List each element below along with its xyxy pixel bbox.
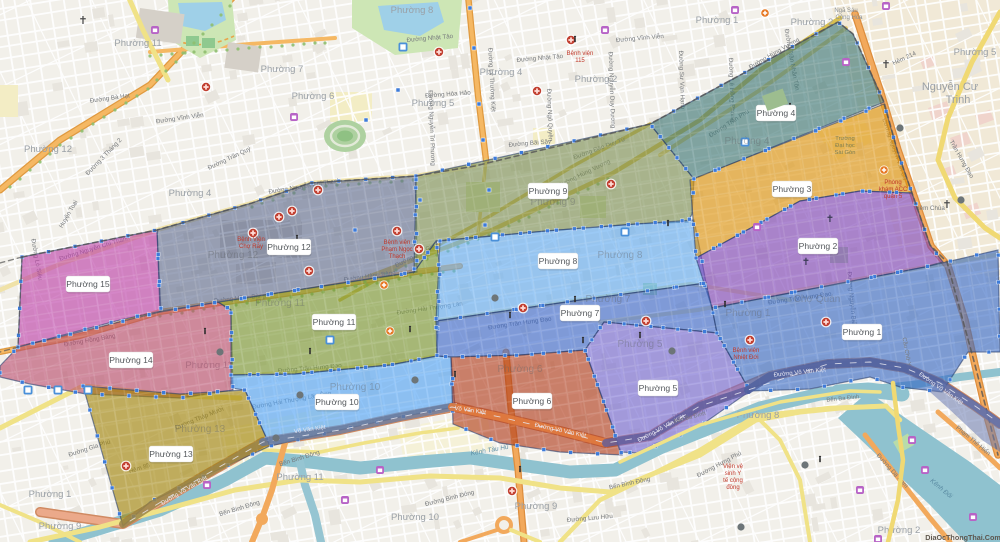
svg-text:Phường 10: Phường 10 <box>330 382 381 393</box>
svg-text:Cộng Hòa: Cộng Hòa <box>835 15 863 21</box>
svg-text:Thạch: Thạch <box>389 254 406 260</box>
svg-text:đồng: đồng <box>726 485 739 491</box>
svg-text:Chợ Quán: Chợ Quán <box>794 294 841 305</box>
svg-text:Phường 6: Phường 6 <box>292 91 335 102</box>
svg-text:Bệnh viện: Bệnh viện <box>733 348 760 354</box>
svg-text:Phường 1: Phường 1 <box>696 15 739 26</box>
svg-text:Phạm Ngọc: Phạm Ngọc <box>381 247 412 253</box>
svg-text:Phường 4: Phường 4 <box>725 136 770 147</box>
svg-text:Phường 13: Phường 13 <box>175 424 226 435</box>
svg-text:Phường 12: Phường 12 <box>24 144 72 155</box>
svg-text:Phường 10: Phường 10 <box>315 397 359 407</box>
svg-text:Phường 2: Phường 2 <box>791 17 834 28</box>
svg-text:Ngã Sáu: Ngã Sáu <box>834 8 857 14</box>
svg-text:Phường 5: Phường 5 <box>954 47 997 58</box>
svg-text:Viện vệ: Viện vệ <box>723 464 744 470</box>
svg-text:Phường 9: Phường 9 <box>515 501 558 512</box>
svg-text:sinh Y: sinh Y <box>725 471 742 477</box>
svg-text:Phường 7: Phường 7 <box>586 294 631 305</box>
svg-text:Phường 9: Phường 9 <box>39 521 82 532</box>
svg-text:Phường 10: Phường 10 <box>391 512 439 523</box>
svg-text:Phường 4: Phường 4 <box>480 67 523 78</box>
svg-text:Phường 3: Phường 3 <box>773 184 812 194</box>
svg-text:Sài Gòn: Sài Gòn <box>835 150 856 156</box>
svg-text:Nguyễn Cư: Nguyễn Cư <box>922 80 979 93</box>
svg-text:quận 5: quận 5 <box>884 194 903 200</box>
svg-text:Phường 2: Phường 2 <box>799 241 838 251</box>
svg-text:✝: ✝ <box>78 15 87 27</box>
svg-text:Phường 1: Phường 1 <box>726 308 771 319</box>
svg-text:Phường 12: Phường 12 <box>208 250 259 261</box>
svg-text:Phường 5: Phường 5 <box>618 339 663 350</box>
svg-text:Bệnh Viện: Bệnh Viện <box>237 237 265 243</box>
svg-text:Bệnh viện: Bệnh viện <box>384 240 411 246</box>
svg-text:Phường 8: Phường 8 <box>598 250 643 261</box>
svg-text:Phòng: Phòng <box>884 180 901 186</box>
svg-text:Chợ Rẫy: Chợ Rẫy <box>239 243 263 250</box>
svg-text:115: 115 <box>575 58 585 64</box>
svg-text:Phường 11: Phường 11 <box>313 317 356 327</box>
svg-text:DiaOcThongThai.Com: DiaOcThongThai.Com <box>925 533 1000 542</box>
svg-text:Bệnh viện: Bệnh viện <box>567 51 594 57</box>
svg-text:Phường 11: Phường 11 <box>276 472 323 483</box>
svg-text:Phường 15: Phường 15 <box>66 279 110 289</box>
svg-text:Phường 13: Phường 13 <box>149 449 193 459</box>
svg-text:Phường 12: Phường 12 <box>267 242 311 252</box>
svg-text:✝: ✝ <box>881 59 890 71</box>
svg-text:Nhiệt Đới: Nhiệt Đới <box>733 355 758 361</box>
svg-text:Phường 1: Phường 1 <box>843 327 882 337</box>
svg-text:Phường 6: Phường 6 <box>498 364 543 375</box>
svg-text:Phường 11: Phường 11 <box>114 38 161 49</box>
svg-text:Hẻm Chùa: Hẻm Chùa <box>915 205 945 212</box>
svg-text:Phường 8: Phường 8 <box>391 5 434 16</box>
svg-text:✝: ✝ <box>802 257 810 268</box>
svg-text:Phường 11: Phường 11 <box>255 298 305 309</box>
svg-text:Phường 1: Phường 1 <box>29 489 72 500</box>
svg-text:Phường 5: Phường 5 <box>639 383 678 393</box>
svg-text:Phường 4: Phường 4 <box>169 188 212 199</box>
svg-text:Phường 8: Phường 8 <box>539 256 578 266</box>
svg-text:Trinh: Trinh <box>946 94 971 106</box>
svg-text:khám ACC: khám ACC <box>879 187 908 193</box>
svg-text:Phường 7: Phường 7 <box>261 64 304 75</box>
svg-text:Phường 6: Phường 6 <box>513 396 552 406</box>
svg-text:Trường: Trường <box>835 136 854 142</box>
svg-text:✝: ✝ <box>826 214 834 225</box>
svg-text:✝: ✝ <box>942 199 951 211</box>
svg-text:Phường 14: Phường 14 <box>109 355 153 365</box>
svg-text:Phường 2: Phường 2 <box>878 525 921 536</box>
svg-text:Phường 9: Phường 9 <box>529 186 568 196</box>
svg-text:tế cộng: tế cộng <box>723 478 743 484</box>
svg-text:Đại học: Đại học <box>835 143 855 149</box>
svg-text:Phường 7: Phường 7 <box>561 308 600 318</box>
svg-text:Phường 4: Phường 4 <box>757 108 796 118</box>
